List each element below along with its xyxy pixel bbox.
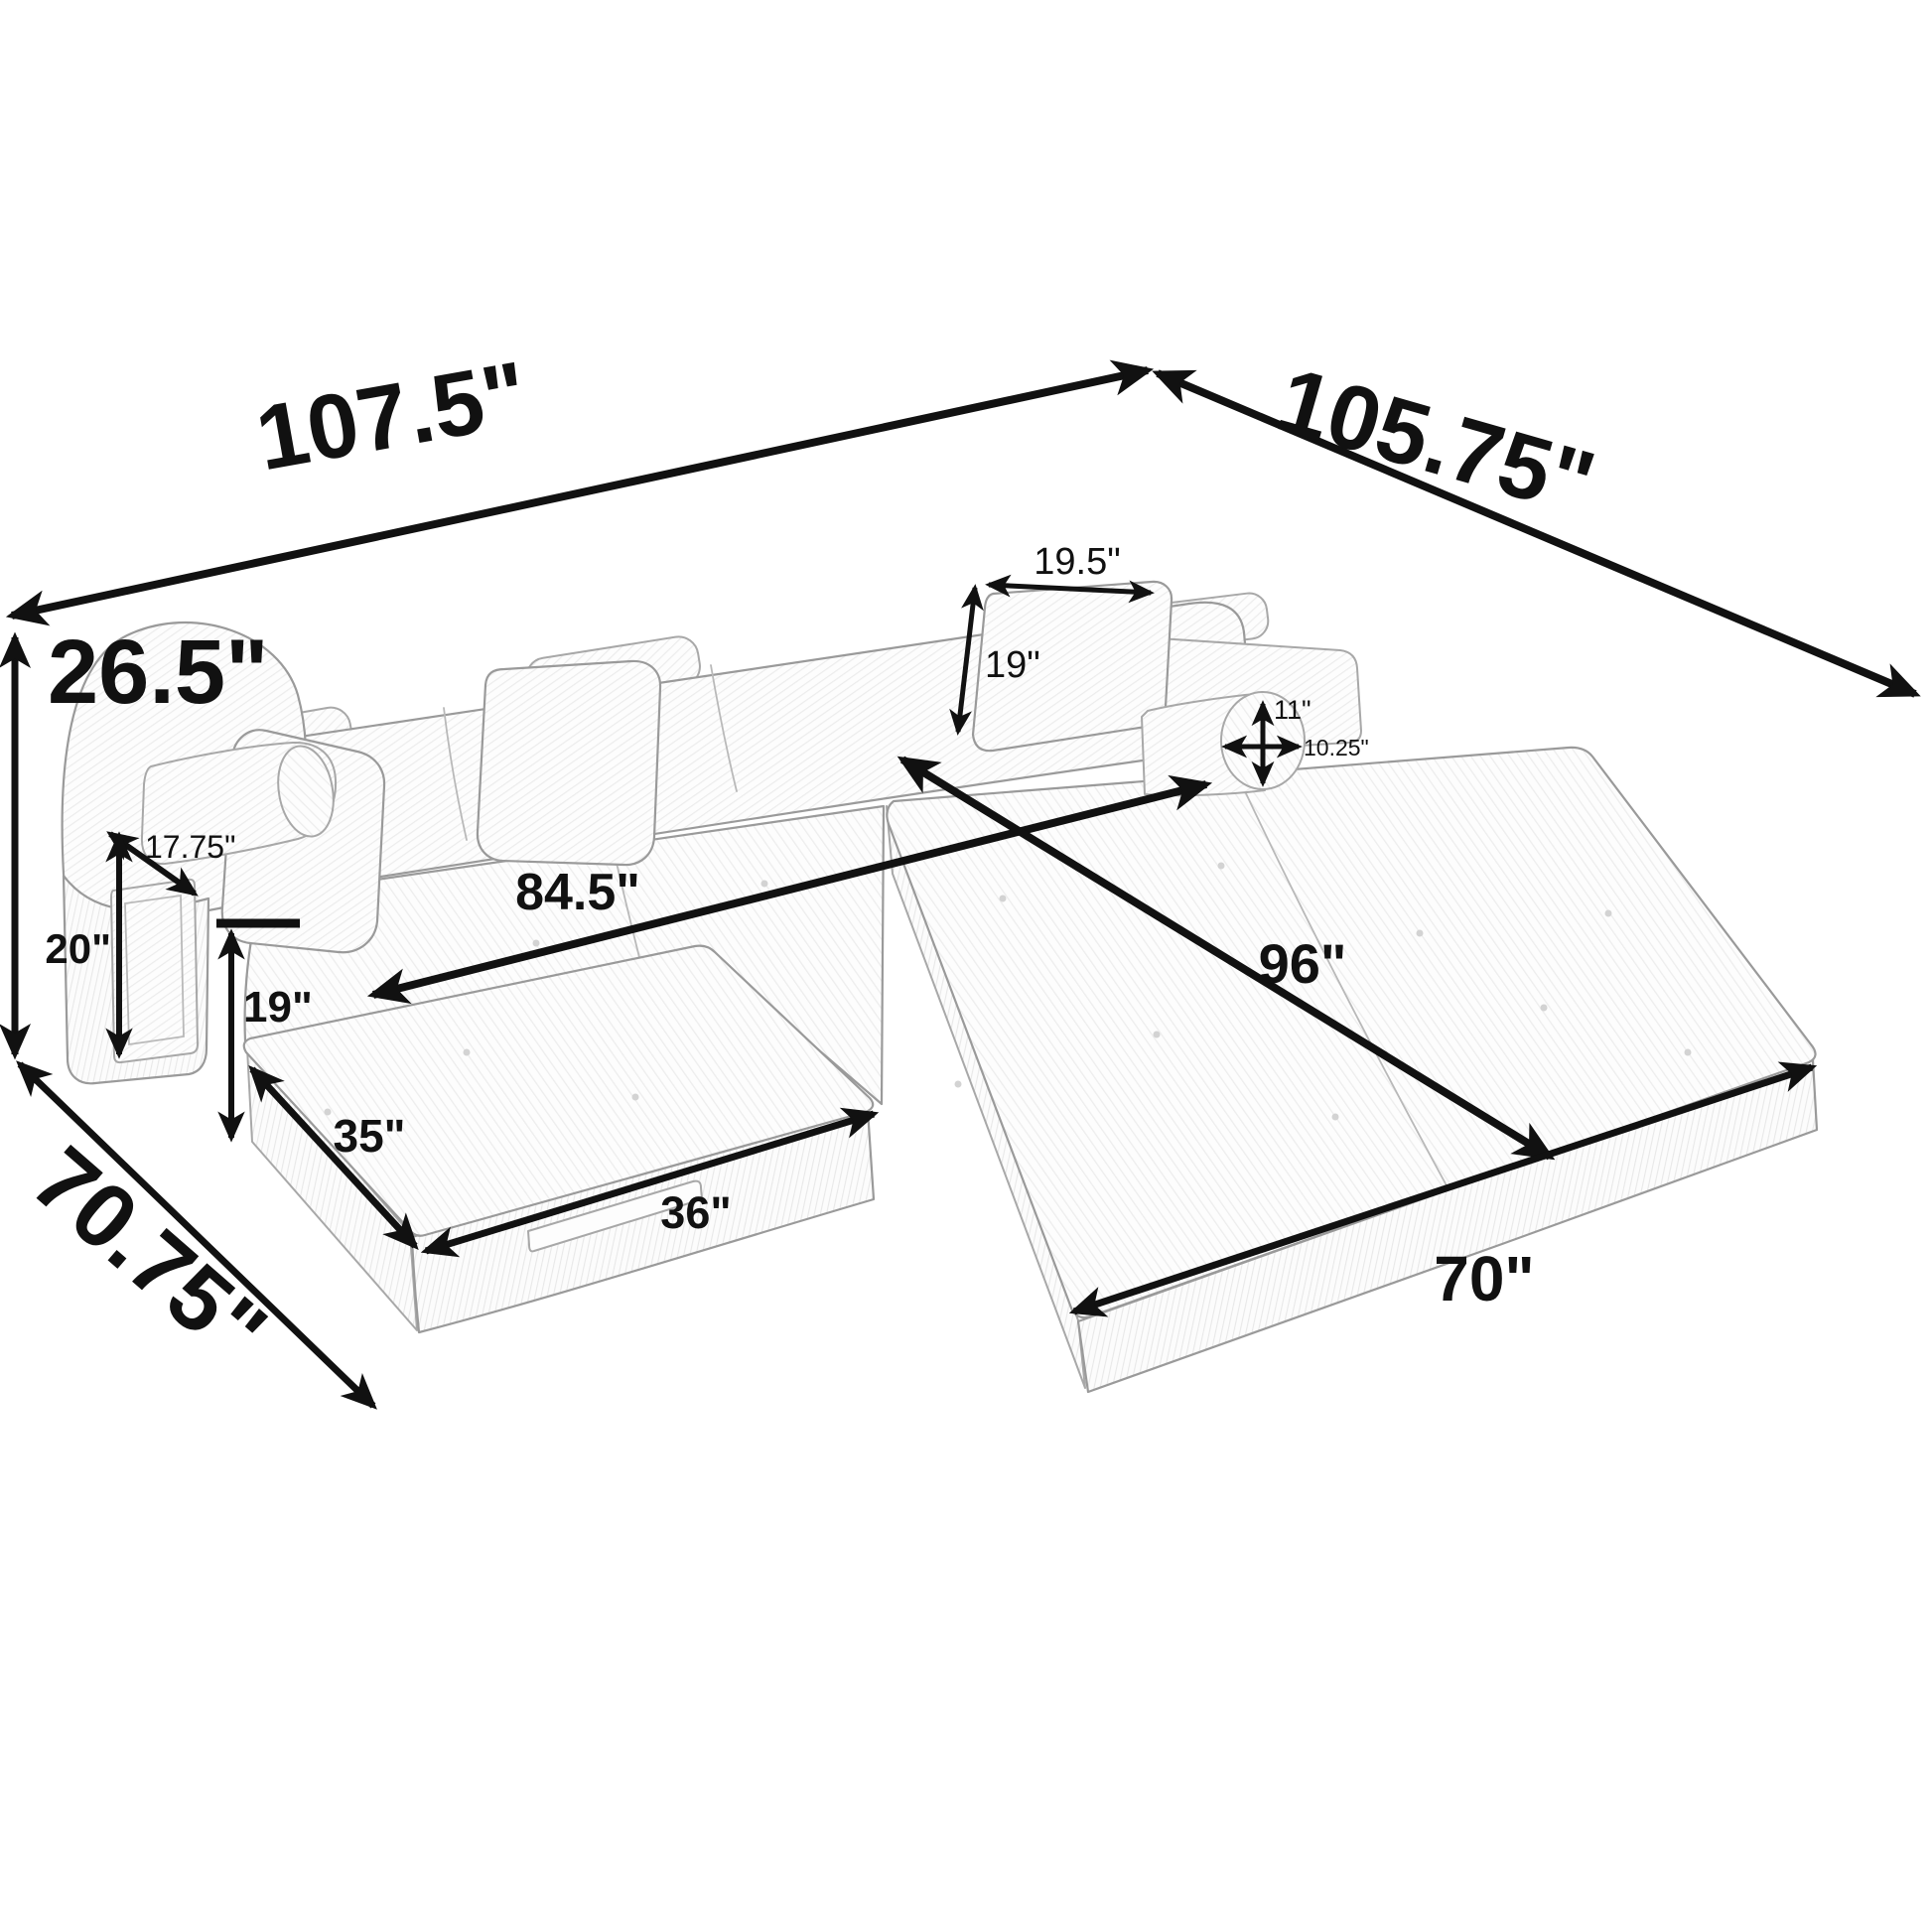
throw-pillow-center [478,661,660,865]
dim-label-sofa-seat-width: 84.5" [515,864,640,921]
dim-label-bolster-width: 10.25" [1304,735,1369,760]
arm-side-pocket [111,880,198,1062]
dim-label-ottoman-depth: 35" [334,1110,406,1162]
dim-label-overall-height: 26.5" [48,621,269,723]
dim-label-seat-height: 19" [243,983,313,1032]
dim-label-overall-width: 107.5" [249,343,534,489]
dim-label-arm-top-width: 17.75" [145,829,235,865]
dim-label-ottoman-width: 36" [660,1187,731,1238]
dim-arrow-overall-width [12,370,1148,616]
dim-label-bolster-height: 11" [1274,695,1311,725]
dim-label-chaise-depth: 70.75" [14,1128,286,1383]
dimension-overall-depth: 105.75" [1158,348,1915,694]
sofa-illustration [63,582,1817,1392]
dim-label-back-pillow-width: 19.5" [1034,541,1120,583]
dimension-diagram-canvas: 107.5" 105.75" 26.5" 70.75" 19.5" 19" 11… [0,0,1932,1932]
dim-label-arm-height: 20" [45,925,111,972]
dim-label-bed-length: 96" [1259,932,1347,995]
sofa-bed-dimension-diagram: 107.5" 105.75" 26.5" 70.75" 19.5" 19" 11… [0,0,1932,1932]
dim-label-overall-depth: 105.75" [1267,348,1605,535]
dimension-overall-width: 107.5" [12,343,1148,616]
dim-label-mattress-front-width: 70" [1434,1243,1535,1314]
dim-label-back-pillow-height: 19" [985,644,1040,686]
